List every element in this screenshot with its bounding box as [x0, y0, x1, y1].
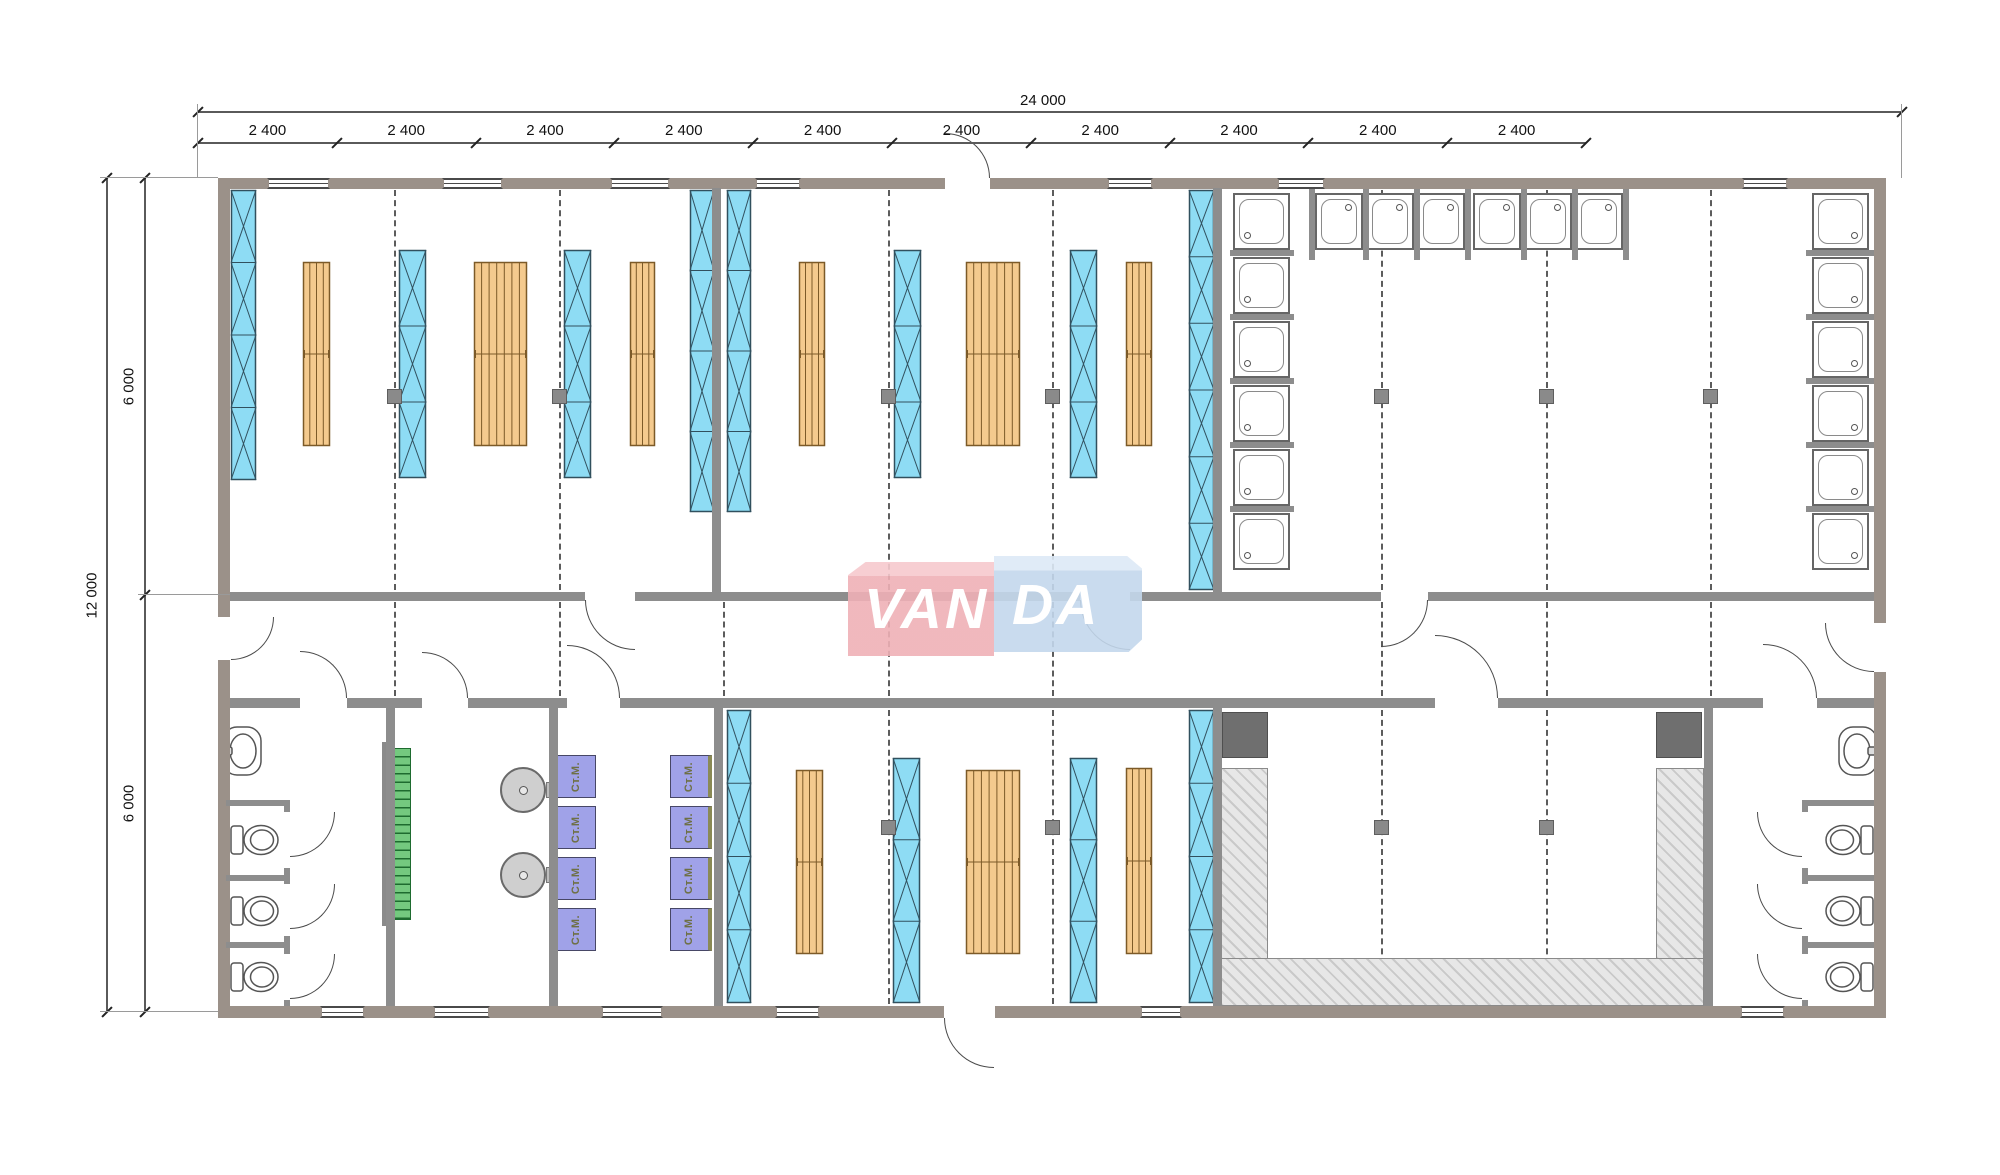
extension-line: [100, 1011, 218, 1012]
washing-machine-label: Ст.М.: [683, 863, 695, 893]
bed: [630, 262, 655, 446]
wardrobe: [1189, 190, 1214, 590]
shower-drain-icon: [1244, 424, 1251, 431]
wall-segment: [1808, 942, 1874, 948]
shower-stall: [1812, 257, 1869, 314]
shower-stall: [1812, 513, 1869, 570]
dimension-line: [198, 111, 1902, 113]
shower-partition: [1363, 188, 1369, 260]
shower-partition: [1230, 442, 1294, 448]
washing-machine: Ст.М.: [670, 755, 712, 798]
shower-stall: [1233, 513, 1290, 570]
wardrobe: [1070, 758, 1097, 1003]
wall-segment: [1808, 875, 1874, 881]
washing-machine-label: Ст.М.: [570, 812, 582, 842]
module-axis-line: [559, 602, 561, 696]
toilet: [1824, 889, 1874, 933]
module-axis-line: [1546, 602, 1548, 696]
wall-segment: [284, 936, 290, 954]
extension-line: [1901, 104, 1902, 178]
shower-partition: [1465, 188, 1471, 260]
toilet: [230, 955, 280, 999]
shower-stall: [1233, 257, 1290, 314]
washing-machine: Ст.М.: [554, 908, 596, 951]
wall-segment: [230, 592, 585, 601]
dimension-bay-label: 2 400: [753, 122, 892, 139]
door-swing: [290, 812, 335, 857]
shower-drain-icon: [1851, 360, 1858, 367]
water-heater: [500, 767, 546, 813]
extension-line: [197, 104, 198, 178]
door-swing: [585, 600, 635, 650]
door-swing: [1757, 954, 1802, 999]
shower-partition: [1414, 188, 1420, 260]
door-swing: [944, 1018, 994, 1068]
toilet: [230, 818, 280, 862]
shower-stall: [1812, 385, 1869, 442]
shower-drain-icon: [1851, 552, 1858, 559]
shower-drain-icon: [1851, 424, 1858, 431]
washing-machine: Ст.М.: [670, 908, 712, 951]
wall-segment: [284, 800, 290, 812]
wardrobe: [564, 250, 591, 478]
washing-machine: Ст.М.: [554, 857, 596, 900]
equipment-block: [1656, 712, 1702, 758]
wall-segment: [1704, 708, 1713, 1006]
washing-machine: Ст.М.: [670, 857, 712, 900]
dimension-bay-label: 2 400: [1308, 122, 1447, 139]
wall-segment: [712, 188, 721, 592]
door-swing: [945, 133, 990, 178]
window: [775, 1006, 820, 1018]
dimension-bay-label: 2 400: [476, 122, 615, 139]
wall-segment: [1498, 698, 1763, 708]
door-swing: [1757, 884, 1802, 929]
shower-stall: [1233, 321, 1290, 378]
window: [320, 1006, 365, 1018]
door-swing: [1825, 623, 1874, 672]
toilet: [1824, 818, 1874, 862]
shower-stall: [1812, 321, 1869, 378]
shower-drain-icon: [1244, 552, 1251, 559]
wall-segment: [1213, 188, 1222, 592]
shower-drain-icon: [1447, 204, 1454, 211]
dimension-bay-label: 2 400: [892, 122, 1031, 139]
wall-segment: [284, 1000, 290, 1006]
wardrobe: [727, 190, 751, 512]
dimension-half-height-label-bottom: 6 000: [121, 777, 138, 831]
window: [1742, 178, 1788, 189]
shower-drain-icon: [1554, 204, 1561, 211]
shower-partition: [1230, 506, 1294, 512]
bed: [1126, 768, 1152, 954]
toilet: [1824, 955, 1874, 999]
dimension-half-height-label-top: 6 000: [121, 360, 138, 414]
column-marker: [552, 389, 567, 404]
shower-partition: [1230, 378, 1294, 384]
wall-segment: [1130, 592, 1381, 601]
shower-drain-icon: [1396, 204, 1403, 211]
column-marker: [1374, 820, 1389, 835]
wall-segment: [386, 708, 395, 1006]
logo-text-right: DA: [1012, 572, 1100, 638]
shower-partition: [1806, 250, 1874, 256]
door-swing: [290, 954, 335, 999]
window: [267, 178, 330, 189]
shower-partition: [1309, 188, 1315, 260]
shower-drain-icon: [1244, 488, 1251, 495]
wardrobe: [690, 190, 714, 512]
dimension-total-width-label: 24 000: [1020, 92, 1066, 109]
wardrobe: [231, 190, 256, 480]
shower-drain-icon: [1605, 204, 1612, 211]
door-swing: [290, 884, 335, 929]
extension-line: [138, 594, 230, 595]
bed: [966, 262, 1020, 446]
wall-segment: [218, 660, 230, 1018]
shower-stall: [1524, 193, 1572, 250]
wall-segment: [549, 708, 558, 1006]
shower-stall: [1812, 449, 1869, 506]
washing-machine-label: Ст.М.: [570, 761, 582, 791]
shower-partition: [1521, 188, 1527, 260]
bed: [799, 262, 825, 446]
wall-segment: [620, 698, 1435, 708]
shower-stall: [1233, 385, 1290, 442]
washing-machine-label: Ст.М.: [683, 812, 695, 842]
wall-segment: [1817, 698, 1874, 708]
module-axis-line: [1710, 602, 1712, 696]
shower-partition: [1806, 442, 1874, 448]
door-swing: [567, 645, 620, 698]
door-swing: [300, 651, 347, 698]
dimension-bay-label: 2 400: [198, 122, 337, 139]
window: [1107, 178, 1153, 189]
wall-segment: [218, 178, 230, 617]
shower-drain-icon: [1851, 488, 1858, 495]
dimension-bay-label: 2 400: [614, 122, 753, 139]
wall-segment: [1213, 708, 1222, 1006]
wall-segment: [714, 708, 723, 1006]
logo-text-left: VAN: [864, 576, 989, 642]
window: [442, 178, 503, 189]
module-axis-line: [1052, 710, 1054, 1004]
column-marker: [1045, 820, 1060, 835]
column-marker: [1374, 389, 1389, 404]
wall-segment: [1808, 800, 1874, 806]
dimension-bay-label: 2 400: [1170, 122, 1309, 139]
dimension-line: [106, 178, 108, 1012]
column-marker: [1703, 389, 1718, 404]
wall-segment: [226, 942, 284, 948]
shower-drain-icon: [1244, 360, 1251, 367]
water-heater-dot: [519, 786, 528, 795]
bed: [796, 770, 823, 954]
shower-drain-icon: [1851, 232, 1858, 239]
shower-stall: [1575, 193, 1623, 250]
wall-segment: [468, 698, 567, 708]
floor-plan: 24 000 12 000 6 000 6 000: [0, 0, 2000, 1175]
module-axis-line: [888, 710, 890, 1004]
window: [1277, 178, 1325, 189]
wall-segment: [226, 800, 284, 806]
washing-machine: Ст.М.: [670, 806, 712, 849]
shower-partition: [1623, 188, 1629, 260]
water-heater: [500, 852, 546, 898]
sink: [1838, 726, 1878, 776]
washing-machine-label: Ст.М.: [570, 914, 582, 944]
bench-hatch: [1656, 768, 1704, 960]
window: [601, 1006, 663, 1018]
window: [755, 178, 801, 189]
column-marker: [1539, 389, 1554, 404]
column-marker: [881, 389, 896, 404]
wall-segment: [1802, 1000, 1808, 1006]
wall-segment: [226, 875, 284, 881]
washing-machine: Ст.М.: [554, 755, 596, 798]
extension-line: [100, 177, 218, 178]
dimension-bay-label: 2 400: [337, 122, 476, 139]
window: [610, 178, 670, 189]
equipment-block: [1222, 712, 1268, 758]
washing-machine: Ст.М.: [554, 806, 596, 849]
column-marker: [1539, 820, 1554, 835]
wall-segment: [347, 698, 422, 708]
shower-stall: [1233, 449, 1290, 506]
shower-stall: [1233, 193, 1290, 250]
shower-partition: [1230, 314, 1294, 320]
wardrobe: [894, 250, 921, 478]
window: [1140, 1006, 1182, 1018]
shower-drain-icon: [1851, 296, 1858, 303]
bed: [1126, 262, 1152, 446]
dimension-bay-label: 2 400: [1031, 122, 1170, 139]
bed: [474, 262, 527, 446]
bed: [966, 770, 1020, 954]
shower-drain-icon: [1503, 204, 1510, 211]
shower-drain-icon: [1244, 232, 1251, 239]
dimension-bay-label: 2 400: [1447, 122, 1586, 139]
shower-partition: [1806, 378, 1874, 384]
washing-machine-label: Ст.М.: [570, 863, 582, 893]
door-swing: [231, 617, 274, 660]
shower-drain-icon: [1345, 204, 1352, 211]
column-marker: [1045, 389, 1060, 404]
wardrobe: [893, 758, 920, 1003]
shower-partition: [1572, 188, 1578, 260]
door-swing: [1763, 644, 1817, 698]
shower-stall: [1473, 193, 1521, 250]
wardrobe: [1070, 250, 1097, 478]
window: [1740, 1006, 1785, 1018]
door-swing: [422, 652, 468, 698]
wall-segment: [1874, 672, 1886, 1018]
door-swing: [1381, 600, 1428, 647]
module-axis-line: [723, 602, 725, 696]
toilet: [230, 889, 280, 933]
shower-stall: [1366, 193, 1414, 250]
wall-segment: [284, 868, 290, 884]
shower-partition: [1806, 314, 1874, 320]
window: [433, 1006, 490, 1018]
water-heater-dot: [519, 871, 528, 880]
module-axis-line: [394, 602, 396, 696]
wall-segment: [230, 698, 300, 708]
column-marker: [387, 389, 402, 404]
dimension-total-height-label: 12 000: [84, 566, 101, 626]
door-swing: [1435, 635, 1498, 698]
shower-partition: [1806, 506, 1874, 512]
shower-stall: [1812, 193, 1869, 250]
wall-segment: [1874, 178, 1886, 623]
washing-machine-label: Ст.М.: [683, 761, 695, 791]
shower-stall: [1417, 193, 1465, 250]
wardrobe: [727, 710, 751, 1003]
wardrobe: [399, 250, 426, 478]
shower-partition: [1230, 250, 1294, 256]
shower-stall: [1315, 193, 1363, 250]
door-swing: [1757, 812, 1802, 857]
wall-segment: [1428, 592, 1874, 601]
bench-hatch: [1220, 768, 1268, 960]
wardrobe: [1189, 710, 1214, 1003]
washing-machine-label: Ст.М.: [683, 914, 695, 944]
shower-drain-icon: [1244, 296, 1251, 303]
bed: [303, 262, 330, 446]
bench-hatch: [1220, 958, 1704, 1006]
column-marker: [881, 820, 896, 835]
